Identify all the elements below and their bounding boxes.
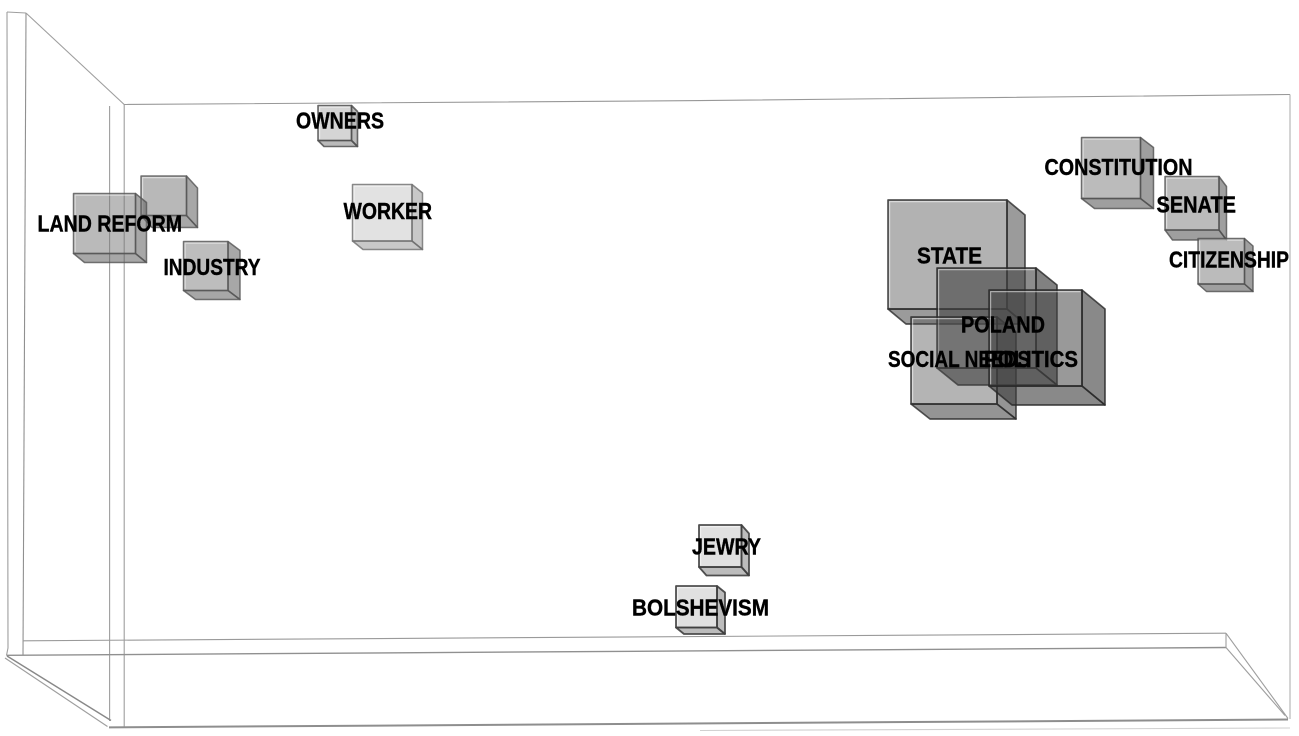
svg-text:SENATE: SENATE [1157, 192, 1237, 218]
svg-text:WORKER: WORKER [344, 198, 433, 224]
svg-text:BOLSHEVISM: BOLSHEVISM [632, 595, 769, 621]
svg-text:OWNERS: OWNERS [296, 108, 384, 134]
svg-text:CONSTITUTION: CONSTITUTION [1045, 154, 1193, 180]
svg-text:INDUSTRY: INDUSTRY [164, 254, 261, 280]
svg-text:CITIZENSHIP: CITIZENSHIP [1169, 247, 1289, 273]
svg-text:POLITICS: POLITICS [984, 346, 1078, 372]
svg-text:LAND REFORM: LAND REFORM [38, 211, 183, 237]
svg-text:POLAND: POLAND [961, 312, 1045, 338]
svg-text:STATE: STATE [917, 243, 982, 269]
svg-text:JEWRY: JEWRY [692, 534, 761, 560]
